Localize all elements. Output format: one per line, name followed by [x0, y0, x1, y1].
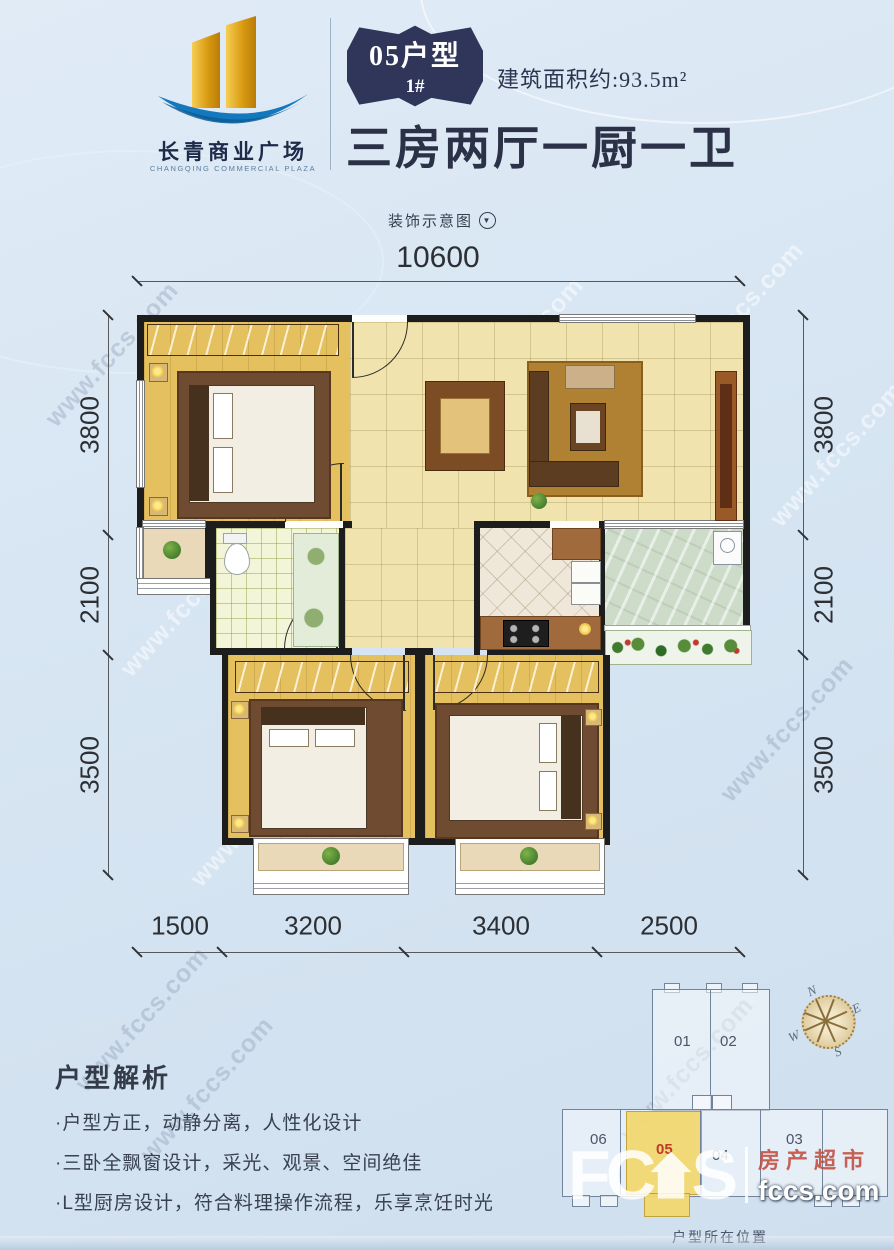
logo-name-cn: 长青商业广场 — [148, 136, 318, 166]
unit-label-02: 02 — [720, 1033, 737, 1050]
lamp — [151, 499, 164, 512]
bay-window-sill — [137, 578, 214, 595]
pillow — [539, 771, 557, 811]
dimension-line-left — [108, 315, 109, 875]
brand-name-cn: 房产超市 — [758, 1143, 870, 1175]
analysis-heading: 户型解析 — [55, 1058, 171, 1095]
schematic-label: 装饰示意图 ▼ — [388, 210, 496, 231]
window-ledge — [456, 880, 604, 892]
dimension-line-right — [803, 315, 804, 875]
dim-right-3: 3500 — [809, 736, 840, 794]
lamp — [151, 365, 164, 378]
hallway — [345, 528, 474, 648]
schematic-label-text: 装饰示意图 — [388, 210, 473, 231]
dim-left-3: 3500 — [75, 736, 106, 794]
dim-bottom-3: 3400 — [472, 911, 530, 942]
plant — [322, 847, 340, 865]
bed-headboard — [561, 715, 581, 819]
entry-opening — [352, 315, 407, 322]
wall-segment — [222, 655, 228, 845]
logo-swoosh-icon — [152, 88, 314, 140]
floorplan-poster: www.fccs.com www.fccs.com www.fccs.com w… — [0, 0, 894, 1250]
chevron-down-icon: ▼ — [479, 212, 496, 229]
kitchen-counter — [552, 528, 601, 560]
logo-name-en: CHANGQING COMMERCIAL PLAZA — [148, 164, 318, 173]
analysis-bullet: ·三卧全飘窗设计，采光、观景、空间绝佳 — [55, 1148, 422, 1175]
lamp — [587, 815, 598, 826]
door-leaf — [352, 322, 354, 377]
bench — [565, 365, 615, 389]
bowl — [579, 623, 591, 635]
pillow — [539, 723, 557, 763]
dim-bottom-2: 3200 — [284, 911, 342, 942]
dim-right-2: 2100 — [809, 566, 840, 624]
pillow — [269, 729, 309, 747]
dim-bottom-1: 1500 — [151, 911, 209, 942]
unit-type-badge: 05户型 1# — [347, 24, 483, 108]
coffee-table-glass — [576, 411, 600, 443]
wall-segment — [222, 838, 257, 845]
house-icon — [649, 1148, 693, 1202]
lamp — [233, 817, 245, 829]
bay-window — [253, 838, 409, 895]
kitchen-cabinet — [571, 583, 601, 605]
bed-headboard — [261, 707, 365, 725]
plant — [163, 541, 181, 559]
wall-segment — [415, 655, 425, 845]
window — [137, 381, 144, 487]
bottom-band — [0, 1236, 894, 1250]
dim-bottom-4: 2500 — [640, 911, 698, 942]
unit-label-01: 01 — [674, 1033, 691, 1050]
analysis-bullet: ·户型方正，动静分离，人性化设计 — [55, 1108, 362, 1135]
brand-letters: S — [691, 1140, 733, 1210]
window-ledge — [254, 880, 408, 892]
dim-top: 10600 — [396, 241, 479, 275]
wall-segment — [405, 648, 433, 655]
brand-letters: FC — [568, 1140, 651, 1210]
wardrobe — [147, 324, 339, 356]
unit-type-label: 05户型 — [369, 34, 461, 74]
window — [143, 521, 205, 528]
master-door-opening — [285, 521, 343, 528]
washing-machine — [713, 531, 742, 565]
shower — [293, 533, 339, 647]
brand-divider — [745, 1147, 748, 1203]
analysis-bullet: ·L型厨房设计，符合料理操作流程，乐享烹饪时光 — [55, 1188, 494, 1215]
dining-table-top — [440, 398, 490, 454]
balcony-slider-window — [605, 521, 743, 528]
window — [137, 528, 143, 578]
bay-window — [455, 838, 605, 895]
wall-segment — [743, 315, 750, 631]
wall-segment — [210, 648, 352, 655]
window — [560, 315, 695, 322]
wall-segment — [603, 655, 610, 845]
kitchen-cabinet — [571, 561, 601, 583]
tv-screen — [720, 384, 732, 508]
kitchen-opening — [550, 521, 599, 528]
lamp — [587, 711, 598, 722]
tv-cabinet — [715, 371, 737, 521]
door-leaf — [340, 463, 342, 521]
dim-left-2: 2100 — [75, 566, 106, 624]
dining-table — [425, 381, 505, 471]
bed-headboard — [189, 385, 209, 501]
building-number-label: 1# — [406, 76, 425, 98]
coffee-table — [570, 403, 606, 451]
dimension-line-bottom — [137, 952, 740, 953]
plant — [520, 847, 538, 865]
plant — [531, 493, 547, 509]
window-ledge — [138, 580, 213, 592]
wall-segment — [407, 838, 455, 845]
sofa — [529, 461, 619, 487]
dim-right-1: 3800 — [809, 396, 840, 454]
flower-box — [605, 630, 752, 665]
fccs-brand-watermark: FC S 房产超市 fccs.com — [568, 1140, 879, 1210]
area-label: 建筑面积约:93.5m² — [497, 62, 687, 94]
page-title: 三房两厅一厨一卫 — [346, 112, 738, 178]
dimension-line-top — [137, 281, 740, 282]
dim-left-1: 3800 — [75, 396, 106, 454]
brand-site: fccs.com — [758, 1175, 879, 1207]
pillow — [213, 393, 233, 439]
developer-logo: 长青商业广场 CHANGQING COMMERCIAL PLAZA — [148, 10, 318, 180]
stove — [503, 620, 549, 647]
wardrobe — [235, 661, 409, 693]
lamp — [233, 703, 245, 715]
pillow — [315, 729, 355, 747]
floorplan — [137, 315, 750, 895]
bed — [261, 707, 367, 829]
toilet — [224, 543, 250, 575]
wall-segment — [210, 528, 216, 655]
mini-divider — [710, 989, 711, 1109]
wardrobe — [433, 661, 599, 693]
mini-top-block — [652, 989, 770, 1111]
wall-segment — [480, 521, 550, 528]
header-divider — [330, 18, 331, 170]
pillow — [213, 447, 233, 493]
